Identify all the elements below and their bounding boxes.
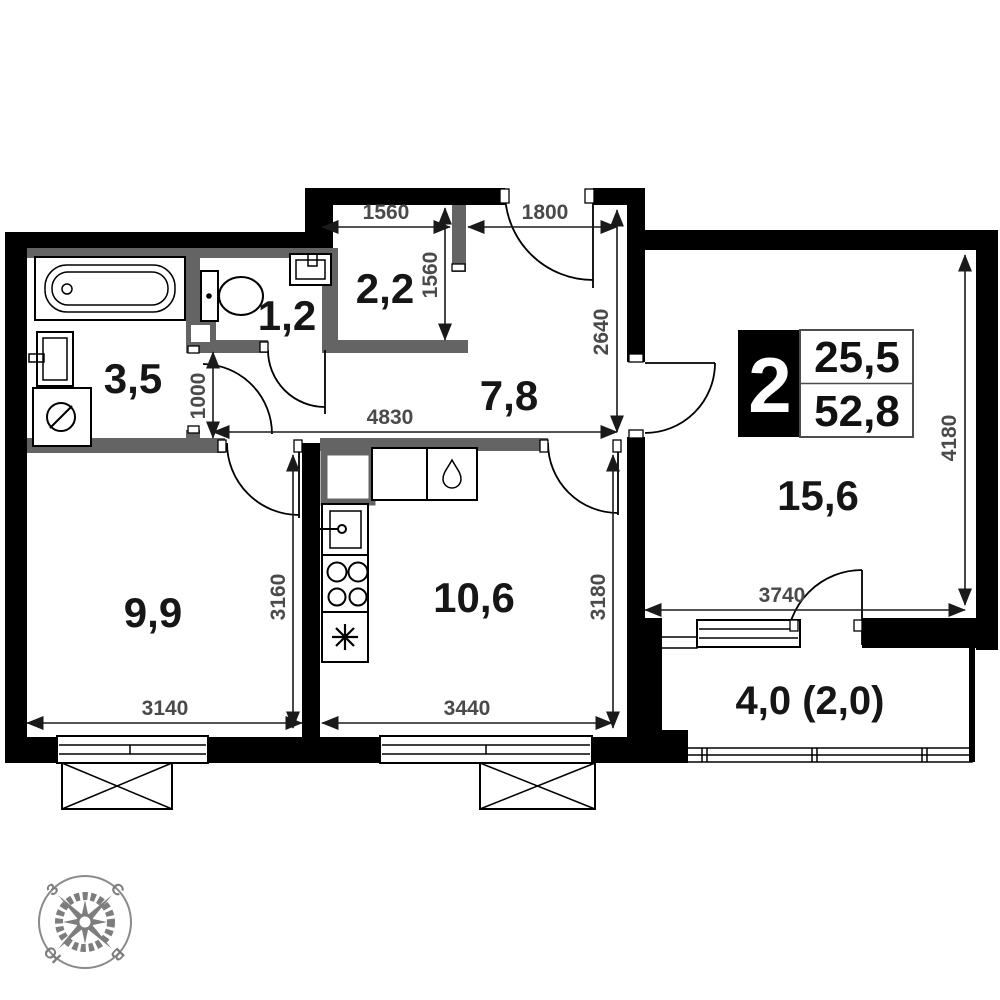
room-label-bathroom: 3,5: [104, 355, 162, 402]
stove: [322, 555, 368, 612]
kitchen-sink: [316, 504, 368, 555]
dim-bedroom-depth: 3160: [267, 455, 293, 728]
dim-kitchen-depth: 3180: [587, 455, 613, 728]
badge-living-area: 25,5: [814, 333, 900, 382]
fridge: [322, 612, 368, 662]
bathroom-sink: [29, 332, 73, 386]
svg-text:1000: 1000: [187, 373, 210, 420]
kitchen-door: [548, 443, 618, 515]
floor-plan: 1560 1800 1560 2640 4830 1000 3140 3160: [0, 0, 1000, 1000]
svg-text:3740: 3740: [759, 584, 806, 607]
bathtub: [35, 257, 185, 320]
svg-text:3140: 3140: [142, 697, 189, 720]
bedroom-door: [227, 443, 299, 518]
svg-text:1800: 1800: [522, 201, 569, 224]
balcony-right-wall: [969, 648, 975, 762]
room-label-hallway: 7,8: [480, 372, 538, 419]
svg-text:4830: 4830: [367, 406, 414, 429]
svg-text:3160: 3160: [267, 574, 290, 621]
dim-hall-width: 4830: [213, 406, 617, 432]
x-box: [62, 763, 172, 809]
room-label-wardrobe: 2,2: [356, 265, 414, 312]
room-label-kitchen: 10,6: [433, 574, 515, 621]
badge-rooms-count: 2: [748, 341, 791, 429]
dim-bedroom-width: 3140: [27, 697, 302, 723]
svg-text:1560: 1560: [363, 201, 410, 224]
room-label-living-room: 15,6: [777, 472, 859, 519]
shaft-box: [191, 325, 210, 342]
room-label-bedroom: 9,9: [124, 589, 182, 636]
toilet-door: [268, 350, 325, 414]
dim-hall-depth: 2640: [590, 210, 617, 432]
window-x-boxes: [62, 763, 595, 809]
living-room-window: [647, 620, 800, 648]
compass-rose: З С Ю В: [39, 876, 131, 968]
dim-living-depth: 4180: [938, 255, 965, 605]
x-box: [480, 763, 595, 809]
living-room-door: [645, 363, 715, 433]
kitchen-counter: [372, 448, 477, 500]
dim-living-width: 3740: [645, 584, 965, 610]
svg-text:4180: 4180: [938, 415, 961, 462]
info-badge: 2 25,5 52,8: [738, 330, 913, 437]
room-label-balcony: 4,0 (2,0): [736, 679, 885, 723]
svg-text:1560: 1560: [419, 252, 442, 299]
toilet-sink: [290, 254, 331, 285]
dim-kitchen-width: 3440: [322, 697, 612, 723]
svg-text:3180: 3180: [587, 574, 610, 621]
room-label-toilet: 1,2: [258, 292, 316, 339]
bedroom-window: [57, 736, 208, 763]
kitchen-window: [380, 736, 592, 763]
toilet: [201, 271, 263, 321]
svg-text:2640: 2640: [590, 309, 613, 356]
badge-total-area: 52,8: [814, 387, 900, 436]
svg-text:3440: 3440: [444, 697, 491, 720]
balcony-glazing: [666, 748, 972, 762]
kitchen-vent-box: [324, 452, 372, 502]
washing-machine: [33, 388, 91, 446]
balcony-step: [662, 730, 688, 763]
